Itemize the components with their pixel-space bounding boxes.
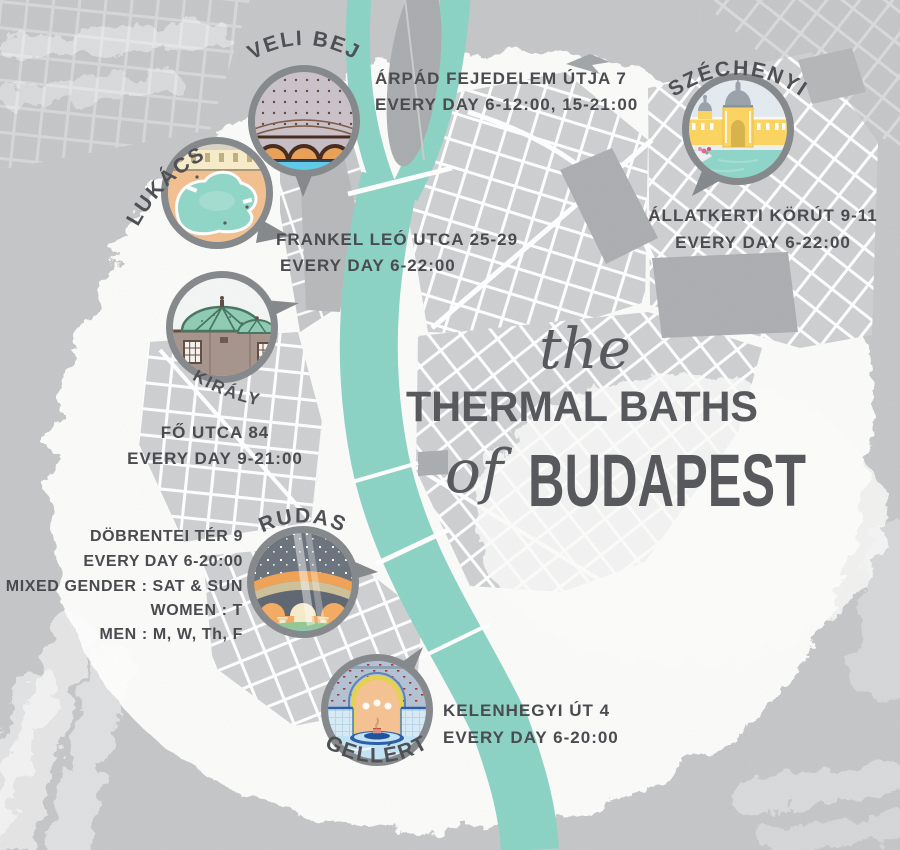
budapest-baths-map: the THERMAL BATHS of BUDAPEST [0, 0, 900, 850]
texture-overlay [0, 0, 900, 850]
map-canvas: the THERMAL BATHS of BUDAPEST [0, 0, 900, 850]
